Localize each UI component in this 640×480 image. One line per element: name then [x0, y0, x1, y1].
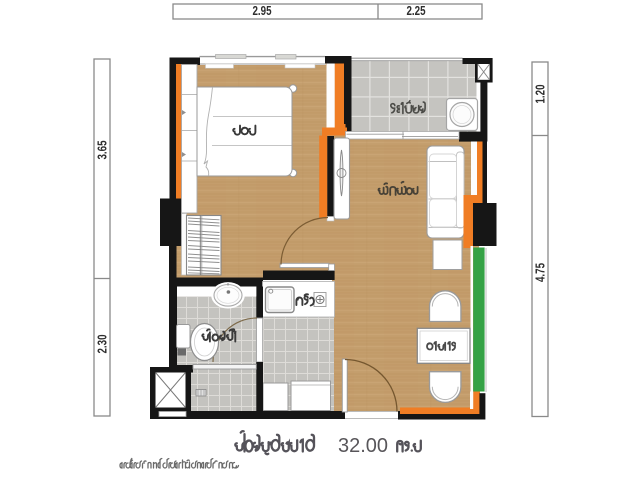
- svg-text:2.25: 2.25: [407, 3, 426, 18]
- svg-text:4.75: 4.75: [533, 263, 548, 282]
- svg-text:1.20: 1.20: [533, 85, 548, 104]
- svg-text:32.00: 32.00: [338, 434, 388, 457]
- svg-text:2.95: 2.95: [253, 3, 272, 18]
- svg-text:3.65: 3.65: [95, 141, 110, 160]
- svg-text:2.30: 2.30: [95, 335, 110, 354]
